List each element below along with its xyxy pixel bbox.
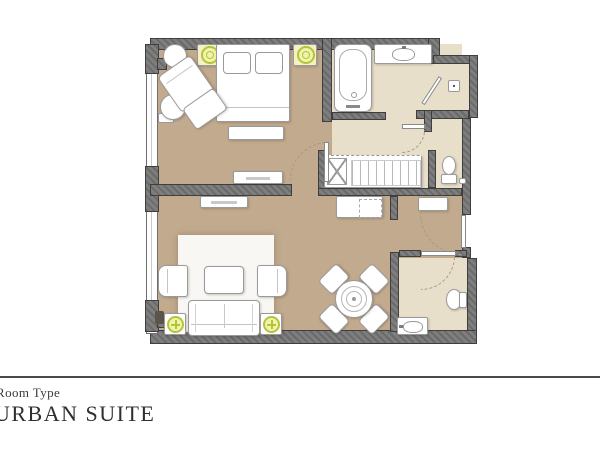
wall-corridor-stub	[390, 196, 398, 220]
minibar-dashed-outline	[359, 199, 382, 218]
lamp-table-left	[164, 313, 186, 335]
entry-door-leaf	[461, 215, 466, 248]
lamp-table-right	[260, 313, 282, 335]
bedroom-door-leaf	[324, 142, 329, 182]
lamp-inner-ring-icon	[302, 51, 310, 59]
pillow-left	[223, 52, 251, 74]
coffee-table	[204, 266, 244, 294]
wc-toilet-bowl-icon	[442, 156, 456, 175]
wall-closet-south	[318, 188, 462, 196]
bed-bench	[228, 126, 284, 140]
bed-sheet-fold	[217, 107, 289, 108]
floor-plan	[0, 0, 600, 380]
bathtub-faucet-icon	[346, 105, 360, 108]
console-living-side	[200, 196, 248, 208]
wall-powder-right	[467, 258, 477, 334]
wc-toilet-tank	[441, 174, 457, 184]
tissue-holder	[459, 178, 466, 184]
room-name-title: URBAN SUITE	[0, 401, 155, 427]
minibar-cabinet	[336, 196, 383, 218]
table-lamp-cross-icon	[167, 316, 184, 333]
wall-partition-bedroom-living	[150, 184, 292, 196]
wardrobe-shelf-x	[327, 158, 347, 185]
chair-seat-line	[167, 269, 168, 293]
bathtub	[334, 44, 372, 112]
lounge-chair-left	[158, 265, 188, 297]
wc-door-leaf	[402, 124, 425, 129]
wall-powder-top-left	[399, 250, 421, 257]
room-type-label: Room Type	[0, 385, 60, 401]
bathtub-drain-icon	[351, 92, 357, 98]
double-bed	[216, 44, 290, 122]
table-lamp-icon	[297, 46, 315, 64]
lounge-chair-right	[257, 265, 287, 297]
dining-table	[335, 280, 373, 318]
divider-line	[0, 376, 600, 378]
sofa	[188, 300, 260, 336]
floor-lamp-icon	[155, 311, 164, 324]
nightstand-right	[293, 44, 317, 66]
wall-wc-left	[428, 150, 436, 188]
sink-icon	[392, 48, 415, 61]
chair-seat-line	[277, 269, 278, 293]
powder-basin-icon	[403, 321, 423, 333]
wall-bed-bath-divider	[322, 38, 332, 122]
hanger-rail-icon	[351, 160, 421, 186]
wardrobe	[324, 155, 422, 188]
floorplan-canvas: Room Type URBAN SUITE	[0, 0, 600, 450]
sofa-arm-left	[195, 304, 196, 332]
faucet-icon	[402, 46, 406, 49]
table-center-dot	[352, 297, 356, 301]
hall-bench	[418, 197, 448, 211]
lamp-inner-ring-icon	[206, 51, 214, 59]
powder-faucet-icon	[399, 325, 403, 328]
armchair-back-line	[166, 65, 193, 84]
console-item	[246, 177, 270, 180]
vanity-counter	[374, 44, 432, 64]
wall-wc-jamb	[424, 110, 432, 132]
wall-tub-south	[332, 112, 386, 120]
console-item	[211, 201, 237, 204]
powder-door-leaf	[421, 251, 456, 256]
table-lamp-cross-icon	[263, 316, 280, 333]
sofa-seam	[224, 304, 225, 328]
powder-sink-counter	[397, 317, 428, 335]
shower-drain-icon	[448, 80, 460, 92]
tv-console-bedroom	[233, 171, 283, 184]
drain-dot	[453, 85, 455, 87]
powder-toilet-tank	[459, 292, 467, 308]
wall-shower-right	[469, 55, 478, 118]
sofa-arm-right	[252, 304, 253, 332]
pillow-right	[255, 52, 283, 74]
wall-right-upper	[462, 118, 471, 215]
